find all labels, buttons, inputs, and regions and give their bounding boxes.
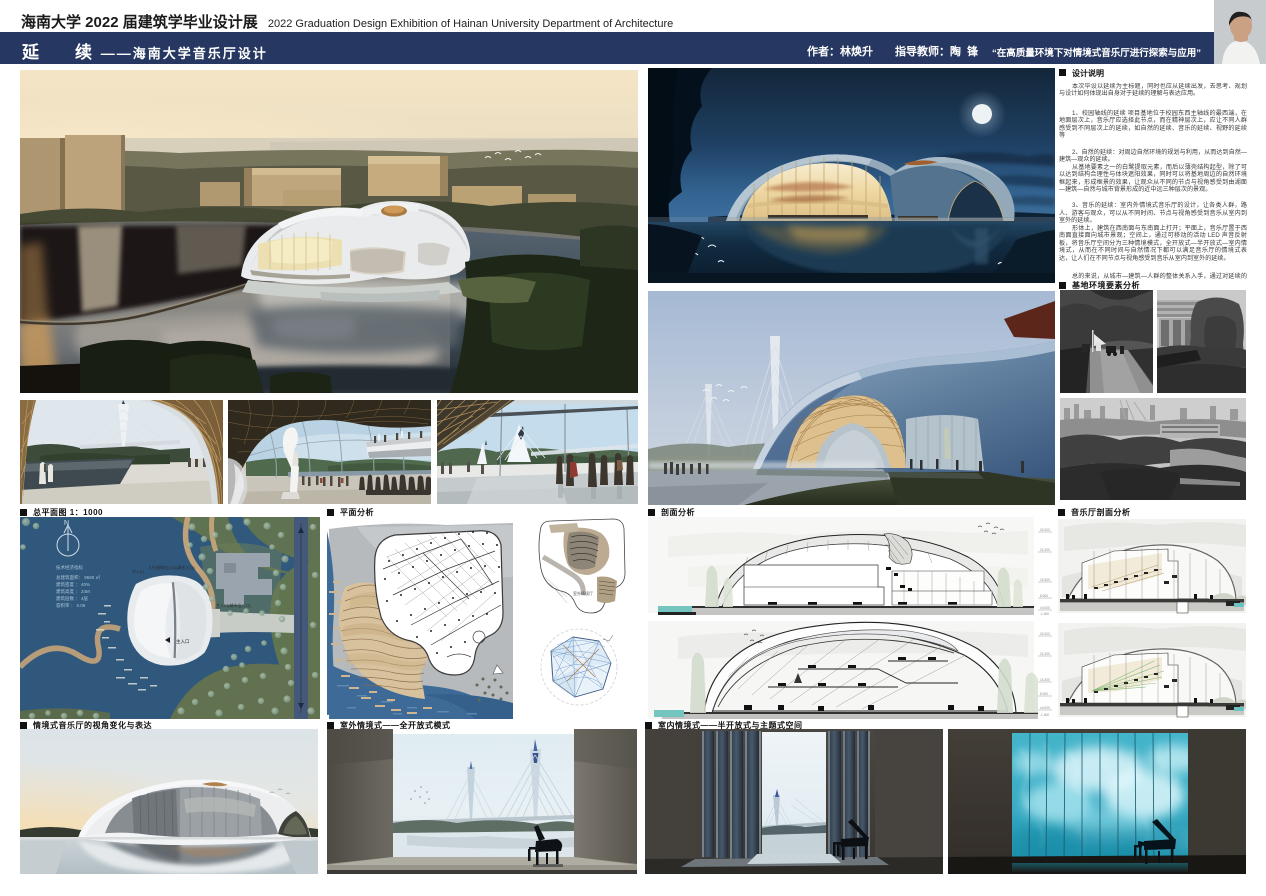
svg-text:-1.400: -1.400 <box>1040 713 1049 717</box>
svg-text:15.300: 15.300 <box>1040 578 1050 582</box>
svg-text:总建筑面积： 9560 ㎡: 总建筑面积： 9560 ㎡ <box>56 574 101 581</box>
svg-text:15.300: 15.300 <box>1040 678 1050 682</box>
svg-text:室外情境厅: 室外情境厅 <box>573 590 593 596</box>
svg-text:21.000: 21.000 <box>1040 548 1050 552</box>
svg-text:24.000: 24.000 <box>1040 528 1050 532</box>
svg-text:主入口(城市出入口): 主入口(城市出入口) <box>216 602 251 608</box>
svg-text:容积率 ： 0.06: 容积率 ： 0.06 <box>56 602 86 609</box>
svg-text:N: N <box>64 520 69 527</box>
svg-text:建筑层数 ： 4层: 建筑层数 ： 4层 <box>56 595 89 602</box>
svg-text:21.000: 21.000 <box>1040 652 1050 656</box>
svg-text:±0.000: ±0.000 <box>1040 706 1050 710</box>
svg-text:8.000: 8.000 <box>1040 692 1048 696</box>
svg-text:主入口: 主入口 <box>176 638 190 645</box>
svg-text:24.000: 24.000 <box>1040 632 1050 636</box>
svg-text:技术经济指标: 技术经济指标 <box>56 564 83 571</box>
svg-text:±0.000: ±0.000 <box>1040 606 1050 610</box>
svg-text:人行道和出入口(演艺入口): 人行道和出入口(演艺入口) <box>148 564 195 570</box>
svg-text:-1.400: -1.400 <box>1040 612 1049 616</box>
svg-text:建筑密度 ： 40%: 建筑密度 ： 40% <box>56 581 90 588</box>
svg-text:建筑高度 ： 24M: 建筑高度 ： 24M <box>56 588 90 595</box>
svg-text:次入口: 次入口 <box>132 568 144 574</box>
svg-text:8.000: 8.000 <box>1040 594 1048 598</box>
